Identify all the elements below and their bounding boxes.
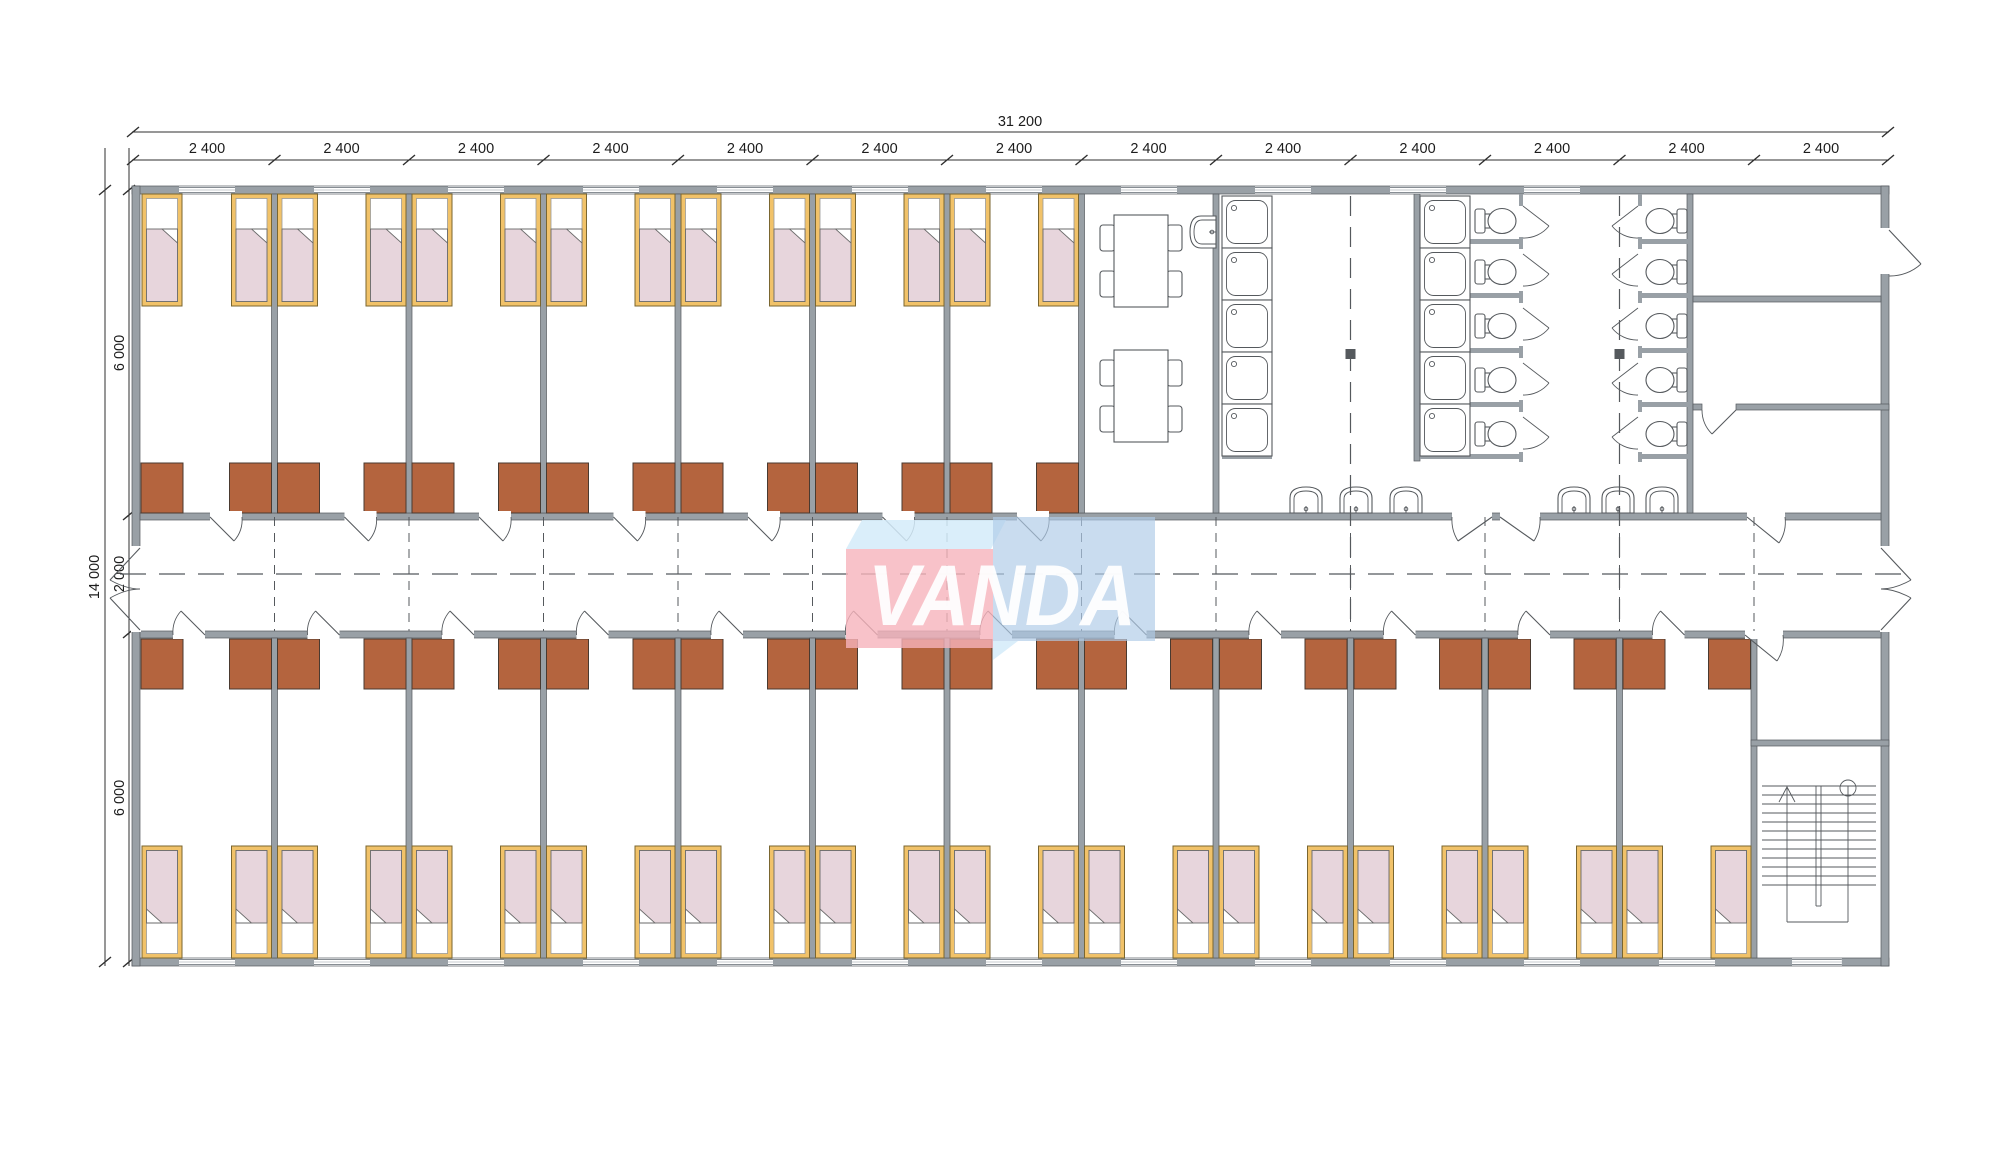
window [1659,958,1715,966]
floor-plan-canvas: 31 200 2 400 2 400 2 400 2 400 2 400 2 4… [0,0,2000,1164]
wash-basin [1646,487,1678,513]
dim-module-label: 2 400 [1803,141,1839,157]
wardrobe [1709,639,1751,689]
wardrobe [1305,639,1347,689]
shower-tray [1420,196,1470,248]
window [1255,186,1311,194]
bed [1354,846,1394,958]
bed [412,846,452,958]
bed [904,846,944,958]
wardrobe [278,639,320,689]
dim-total-height-label: 14 000 [87,555,103,599]
door-corridor-right [1880,546,1911,632]
dim-module-label: 2 400 [1265,141,1301,157]
window [583,186,639,194]
wardrobe [547,463,589,513]
bed [142,194,182,306]
dim-left-segment-label: 6 000 [112,335,128,371]
column-marker [1346,349,1356,359]
bed [1308,846,1348,958]
wardrobe [1171,639,1213,689]
wardrobe [633,639,675,689]
shower-tray [1420,404,1470,456]
sanitary-block [1100,196,1687,513]
shower-tray [1222,248,1272,300]
window [986,958,1042,966]
wash-basin [1190,216,1216,248]
window [314,186,370,194]
toilet [1475,368,1516,393]
wardrobe [364,463,406,513]
dim-module-label: 2 400 [1130,141,1166,157]
shower-tray [1420,300,1470,352]
wardrobe [1574,639,1616,689]
shower-tray [1222,196,1272,248]
shower-tray [1420,248,1470,300]
bed [501,846,541,958]
shower-tray [1420,352,1470,404]
window [583,958,639,966]
window [717,186,773,194]
bed [770,846,810,958]
bed [232,194,272,306]
dim-module-label: 2 400 [1668,141,1704,157]
dim-module-label: 2 400 [996,141,1032,157]
bed [1488,846,1528,958]
vanda-logo: VANDA [846,517,1155,660]
wardrobe [1037,463,1079,513]
window [852,958,908,966]
dining-table [1100,350,1182,442]
dim-left-segment-label: 6 000 [112,780,128,816]
window [179,186,235,194]
bedrooms-top [141,194,1079,513]
stair-room-wall [1751,740,1889,746]
bed [366,846,406,958]
toilet [1646,368,1687,393]
window [1121,186,1177,194]
wash-basin [1340,487,1372,513]
bed [278,846,318,958]
wardrobe [141,463,183,513]
bed [1219,846,1259,958]
floor-plan-page: 31 200 2 400 2 400 2 400 2 400 2 400 2 4… [0,0,2000,1164]
bed [950,194,990,306]
bed [366,194,406,306]
column-marker [1615,349,1625,359]
bed [412,194,452,306]
bed [681,846,721,958]
toilet [1475,422,1516,447]
dimension-top: 31 200 2 400 2 400 2 400 2 400 2 400 2 4… [127,114,1894,165]
wardrobe [768,463,810,513]
window [179,958,235,966]
wardrobe [1354,639,1396,689]
wardrobe [1037,639,1079,689]
toilet [1646,422,1687,447]
dim-module-label: 2 400 [458,141,494,157]
logo-top-face [846,520,1006,549]
wardrobe [499,463,541,513]
wardrobe [1489,639,1531,689]
bed [547,846,587,958]
wardrobe [364,639,406,689]
bed [1085,846,1125,958]
wardrobe [950,463,992,513]
window [986,186,1042,194]
dim-module-label: 2 400 [1534,141,1570,157]
toilet [1646,209,1687,234]
window [1255,958,1311,966]
wardrobe [412,463,454,513]
toilet [1475,314,1516,339]
dim-total-width-label: 31 200 [998,114,1042,130]
bed [635,194,675,306]
window [448,958,504,966]
wardrobe [681,639,723,689]
door-interior [1702,410,1736,434]
shower-tray [1222,300,1272,352]
wardrobe [1220,639,1262,689]
bed [278,194,318,306]
window [1792,958,1842,966]
bed [1039,846,1079,958]
wash-basin [1558,487,1590,513]
wardrobe [547,639,589,689]
wash-basin [1602,487,1634,513]
wardrobe [412,639,454,689]
logo-text: VANDA [868,548,1136,644]
wardrobe [278,463,320,513]
bed [950,846,990,958]
wardrobe [1623,639,1665,689]
dimension-left: 14 000 6 000 2 000 6 000 [87,148,135,967]
wardrobe [681,463,723,513]
dim-module-label: 2 400 [189,141,225,157]
bed [1711,846,1751,958]
bed [770,194,810,306]
window [448,186,504,194]
wardrobe [1440,639,1482,689]
wardrobe [230,639,272,689]
window [1390,958,1446,966]
wardrobe [768,639,810,689]
bed [142,846,182,958]
wardrobe [230,463,272,513]
wash-basin [1290,487,1322,513]
window [1121,958,1177,966]
window [1524,186,1580,194]
door-entrance [1880,228,1921,276]
dim-module-label: 2 400 [1399,141,1435,157]
bed [1039,194,1079,306]
toilet [1646,260,1687,285]
stall-doors [1523,206,1638,449]
toilet [1475,209,1516,234]
wash-basin [1390,487,1422,513]
bed [816,846,856,958]
dim-module-label: 2 400 [861,141,897,157]
window [852,186,908,194]
bed [501,194,541,306]
toilet [1475,260,1516,285]
dim-module-label: 2 400 [323,141,359,157]
window [717,958,773,966]
bed [1442,846,1482,958]
bed [1577,846,1617,958]
dining-table [1100,215,1182,307]
bed [232,846,272,958]
bed [681,194,721,306]
wardrobe [902,463,944,513]
dim-module-label: 2 400 [592,141,628,157]
shower-tray [1222,352,1272,404]
staircase [1762,780,1876,922]
bed [1173,846,1213,958]
dim-module-label: 2 400 [727,141,763,157]
bed [904,194,944,306]
window [1524,958,1580,966]
shower-tray [1222,404,1272,456]
wardrobe [141,639,183,689]
bed [816,194,856,306]
wardrobe [499,639,541,689]
bed [547,194,587,306]
toilet [1646,314,1687,339]
wardrobe [816,463,858,513]
wardrobe [1085,639,1127,689]
wardrobe [633,463,675,513]
window [1390,186,1446,194]
window [314,958,370,966]
bed [635,846,675,958]
bed [1623,846,1663,958]
